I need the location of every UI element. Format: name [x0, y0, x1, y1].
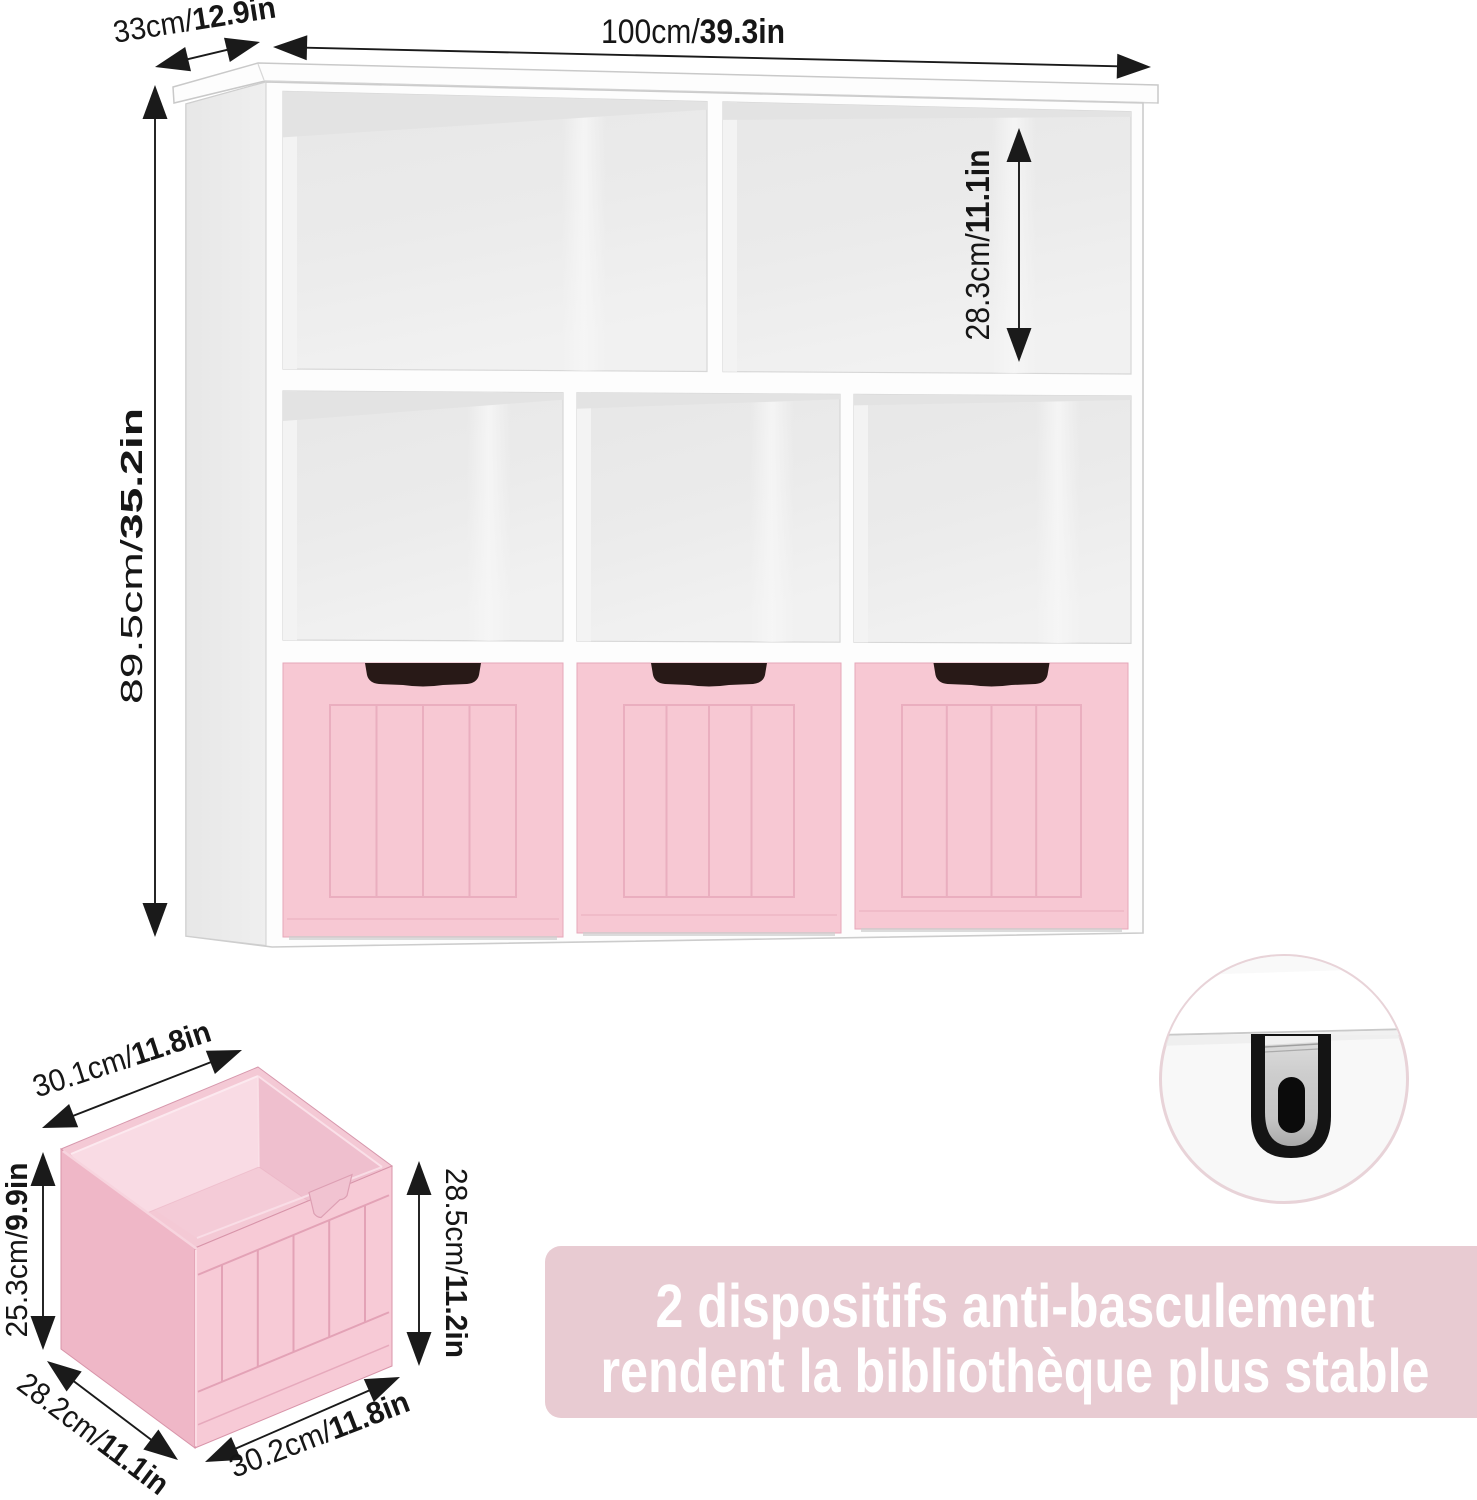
- svg-text:89.5cm/35.2in: 89.5cm/35.2in: [114, 408, 149, 704]
- svg-text:30.1cm/11.8in: 30.1cm/11.8in: [28, 1014, 215, 1104]
- svg-text:28.3cm/11.1in: 28.3cm/11.1in: [959, 150, 996, 341]
- svg-text:28.5cm/11.2in: 28.5cm/11.2in: [439, 1168, 474, 1358]
- svg-text:2 dispositifs anti-basculement: 2 dispositifs anti-basculement: [656, 1272, 1375, 1340]
- svg-text:100cm/39.3in: 100cm/39.3in: [601, 13, 785, 51]
- svg-text:25.3cm/9.9in: 25.3cm/9.9in: [0, 1163, 34, 1338]
- svg-text:rendent la bibliothèque plus s: rendent la bibliothèque plus stable: [601, 1337, 1430, 1405]
